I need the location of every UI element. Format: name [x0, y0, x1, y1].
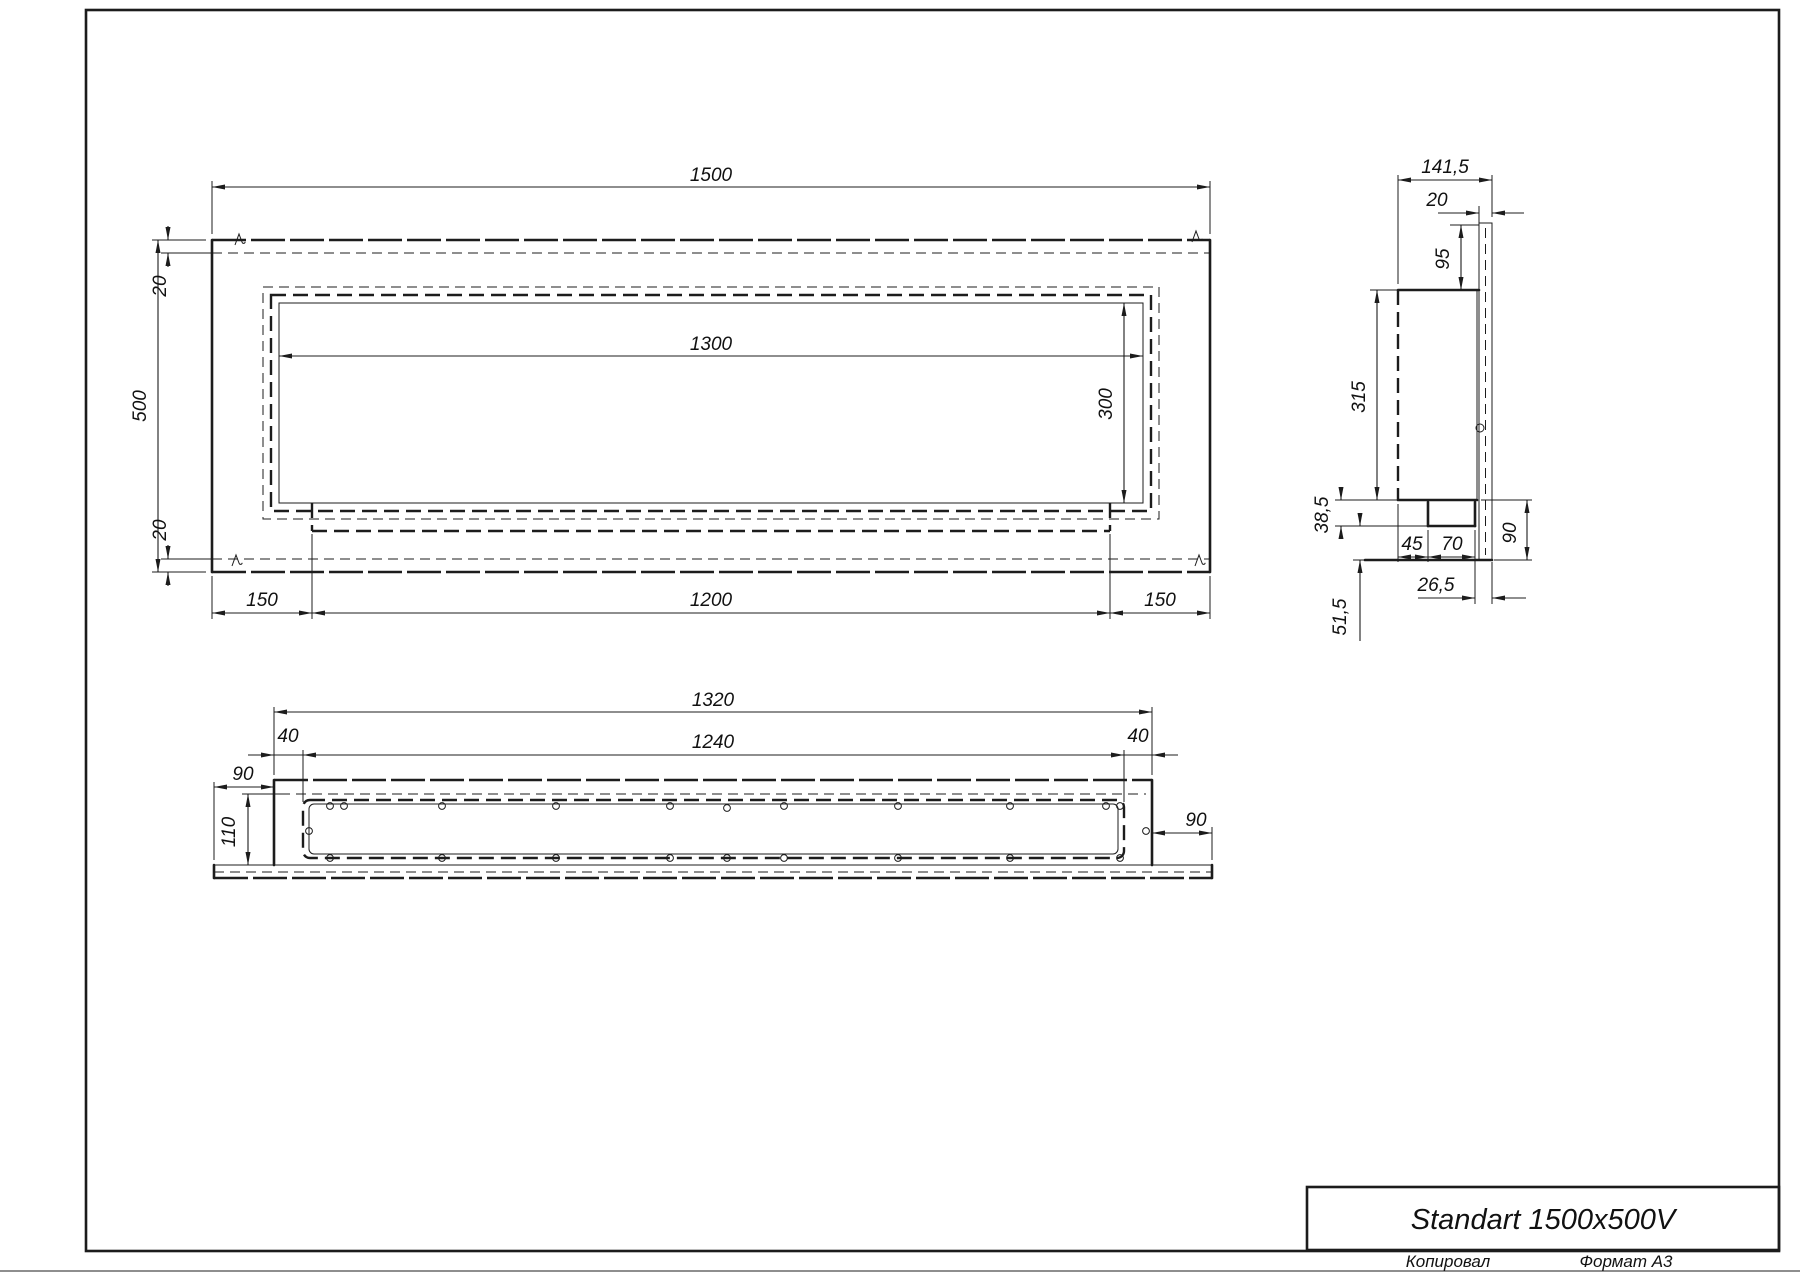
title-block: Standart 1500x500V Копировал Формат А3: [1307, 1187, 1779, 1271]
front-dim-height: 500: [130, 390, 151, 422]
bottom-dim-opening-width: 1240: [692, 732, 735, 753]
side-dim-depth: 141,5: [1421, 157, 1469, 178]
side-dim-front-gap: 45: [1401, 534, 1423, 555]
mounting-holes: [306, 803, 1150, 862]
format-label: Формат А3: [1579, 1252, 1673, 1271]
side-dim-base-offset: 51,5: [1330, 598, 1351, 635]
side-dim-burner-width: 70: [1441, 534, 1463, 555]
front-dim-tray-width: 1200: [690, 590, 733, 611]
front-dim-right-margin: 150: [1144, 590, 1176, 611]
bottom-dim-body-width: 1320: [692, 690, 735, 711]
copied-label: Копировал: [1406, 1252, 1491, 1271]
side-dim-flange-gap: 26,5: [1417, 575, 1455, 596]
bottom-view: 1320 1240 40 40 90 110 90: [214, 690, 1212, 878]
weld-mark: [232, 231, 1205, 566]
bottom-dim-left-inset: 40: [277, 726, 299, 747]
front-dim-top-inset: 20: [150, 275, 171, 298]
front-dim-width: 1500: [690, 165, 733, 186]
sheet-frame: [0, 10, 1800, 1271]
front-view: 1500 500 20 20 1300 300 150 1200 150: [130, 165, 1210, 619]
bottom-dim-right-inset: 40: [1127, 726, 1149, 747]
side-view: 141,5 20 95 315 38,5 45 70 90: [1312, 157, 1532, 641]
side-dim-base-height: 90: [1500, 522, 1521, 544]
front-dim-opening-width: 1300: [690, 334, 733, 355]
drawing-sheet: 1500 500 20 20 1300 300 150 1200 150: [0, 0, 1800, 1273]
bottom-dim-depth: 110: [219, 816, 240, 847]
side-dim-flange-width: 20: [1425, 190, 1448, 211]
side-dim-top-offset: 95: [1433, 248, 1454, 270]
drawing-title: Standart 1500x500V: [1411, 1204, 1678, 1236]
side-dim-body-height: 315: [1349, 381, 1370, 413]
front-dim-opening-height: 300: [1096, 388, 1117, 420]
technical-drawing: 1500 500 20 20 1300 300 150 1200 150: [0, 0, 1800, 1273]
bottom-dim-left-overhang: 90: [232, 764, 254, 785]
side-dim-burner-depth: 38,5: [1312, 496, 1333, 533]
front-dim-left-margin: 150: [246, 590, 278, 611]
front-dim-bottom-inset: 20: [150, 519, 171, 542]
bottom-dim-right-overhang: 90: [1185, 810, 1207, 831]
